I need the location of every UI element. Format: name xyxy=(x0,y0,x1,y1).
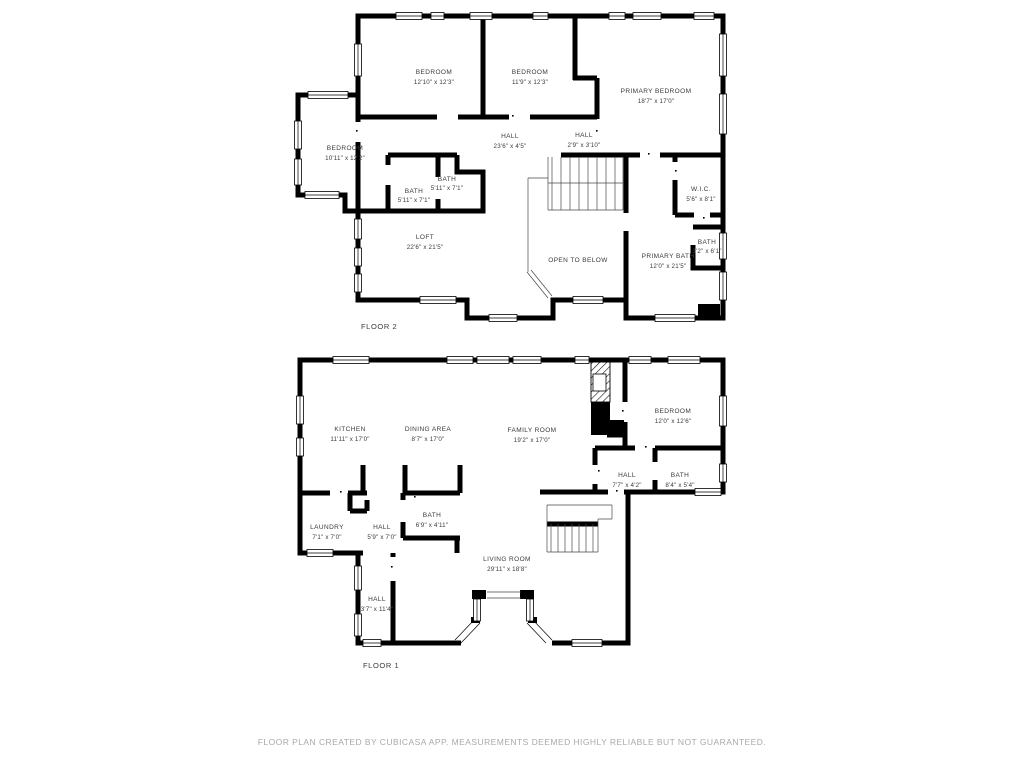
floor2-bedroom-a-name: BEDROOM xyxy=(416,69,452,76)
fireplace-inner xyxy=(593,374,606,391)
footer-disclaimer: FLOOR PLAN CREATED BY CUBICASA APP. MEAS… xyxy=(0,737,1024,747)
floor2-hall-small-name: HALL xyxy=(575,132,593,139)
floor1-plan: KITCHEN 11'11" x 17'0" DINING AREA 8'7" … xyxy=(297,357,727,671)
floor2-primary-bedroom-name: PRIMARY BEDROOM xyxy=(621,88,692,95)
floor1-hall-upper-name: HALL xyxy=(618,472,636,479)
chimney-mass-2 xyxy=(607,420,624,436)
floor2-bath-a-dims: 5'11" x 7'1" xyxy=(398,197,430,204)
entry-threshold xyxy=(487,592,521,598)
floor1-hall-mid-name: HALL xyxy=(373,524,391,531)
floorplan-page: BEDROOM 12'10" x 12'3" BEDROOM 11'9" x 1… xyxy=(0,0,1024,768)
floor1-walls xyxy=(298,358,726,646)
floor1-kitchen-name: KITCHEN xyxy=(334,426,365,433)
floor2-bath-b-dims: 5'11" x 7'1" xyxy=(431,185,463,192)
floor1-family-room-dims: 19'2" x 17'0" xyxy=(514,437,551,444)
floor2-loft-dims: 22'6" x 21'5" xyxy=(407,244,444,251)
floor2-stairs xyxy=(527,157,623,298)
entry-corner-right xyxy=(520,590,534,599)
floor1-kitchen-dims: 11'11" x 17'0" xyxy=(330,436,369,443)
floor1-hall-lower-name: HALL xyxy=(368,596,386,603)
floor1-bath-upper-name: BATH xyxy=(671,472,689,479)
floor2-plan: BEDROOM 12'10" x 12'3" BEDROOM 11'9" x 1… xyxy=(295,13,727,332)
floor1-living-room-name: LIVING ROOM xyxy=(483,556,531,563)
floor1-hall-mid-dims: 5'9" x 7'0" xyxy=(367,534,396,541)
floor1-hall-lower-dims: 3'7" x 11'4" xyxy=(361,606,393,613)
floor2-bedroom-c-dims: 10'11" x 12'2" xyxy=(325,155,365,162)
floor1-dining-area-name: DINING AREA xyxy=(405,426,452,433)
floor2-bedroom-c-name: BEDROOM xyxy=(327,145,363,152)
floor1-family-room-name: FAMILY ROOM xyxy=(508,427,557,434)
floor2-loft-name: LOFT xyxy=(416,234,434,241)
floor1-laundry-dims: 7'1" x 7'0" xyxy=(312,534,341,541)
floor1-windows xyxy=(297,357,727,647)
floor1-title: FLOOR 1 xyxy=(363,661,399,670)
floor1-hall-upper-dims: 7'7" x 4'2" xyxy=(612,482,641,489)
floor1-stairs xyxy=(487,505,612,598)
floor2-bedroom-b-name: BEDROOM xyxy=(512,69,548,76)
floor2-shower-mass xyxy=(698,304,720,317)
floor2-bath-a-name: BATH xyxy=(405,188,423,195)
floor2-hall-dims: 23'6" x 4'5" xyxy=(494,143,527,150)
floor2-bath-c-name: BATH xyxy=(698,239,716,246)
floor2-primary-bath-dims: 12'0" x 21'5" xyxy=(650,263,687,270)
floor2-primary-bedroom-dims: 18'7" x 17'0" xyxy=(638,98,675,105)
floor2-bedroom-a-dims: 12'10" x 12'3" xyxy=(414,79,454,86)
floor1-laundry-name: LAUNDRY xyxy=(310,524,344,531)
entry-corner-left xyxy=(472,590,486,599)
floor1-bath-upper-dims: 8'4" x 5'4" xyxy=(665,482,694,489)
floor2-open-to-below-label: OPEN TO BELOW xyxy=(548,257,608,264)
floor2-bath-c-dims: 3'2" x 6'1" xyxy=(692,248,721,255)
floor2-primary-bath-name: PRIMARY BATH xyxy=(642,253,695,260)
floor2-wic-name: W.I.C. xyxy=(691,186,711,193)
floor1-bedroom-name: BEDROOM xyxy=(655,408,691,415)
floor1-dining-area-dims: 8'7" x 17'0" xyxy=(412,436,445,443)
floor1-living-room-dims: 29'11" x 18'8" xyxy=(487,566,527,573)
floor2-hall-small-dims: 2'9" x 3'10" xyxy=(568,142,601,149)
floor2-title: FLOOR 2 xyxy=(361,322,397,331)
floorplan-canvas: BEDROOM 12'10" x 12'3" BEDROOM 11'9" x 1… xyxy=(0,0,1024,768)
floor1-bath-mid-name: BATH xyxy=(423,512,441,519)
floor2-walls xyxy=(298,14,726,321)
floor1-bath-mid-dims: 6'9" x 4'11" xyxy=(416,522,448,529)
floor1-bedroom-dims: 12'0" x 12'6" xyxy=(655,418,692,425)
floor2-hall-name: HALL xyxy=(501,133,519,140)
floor2-bedroom-b-dims: 11'9" x 12'3" xyxy=(512,79,548,86)
floor2-bath-b-name: BATH xyxy=(438,176,456,183)
floor2-wic-dims: 5'6" x 8'1" xyxy=(686,196,715,203)
